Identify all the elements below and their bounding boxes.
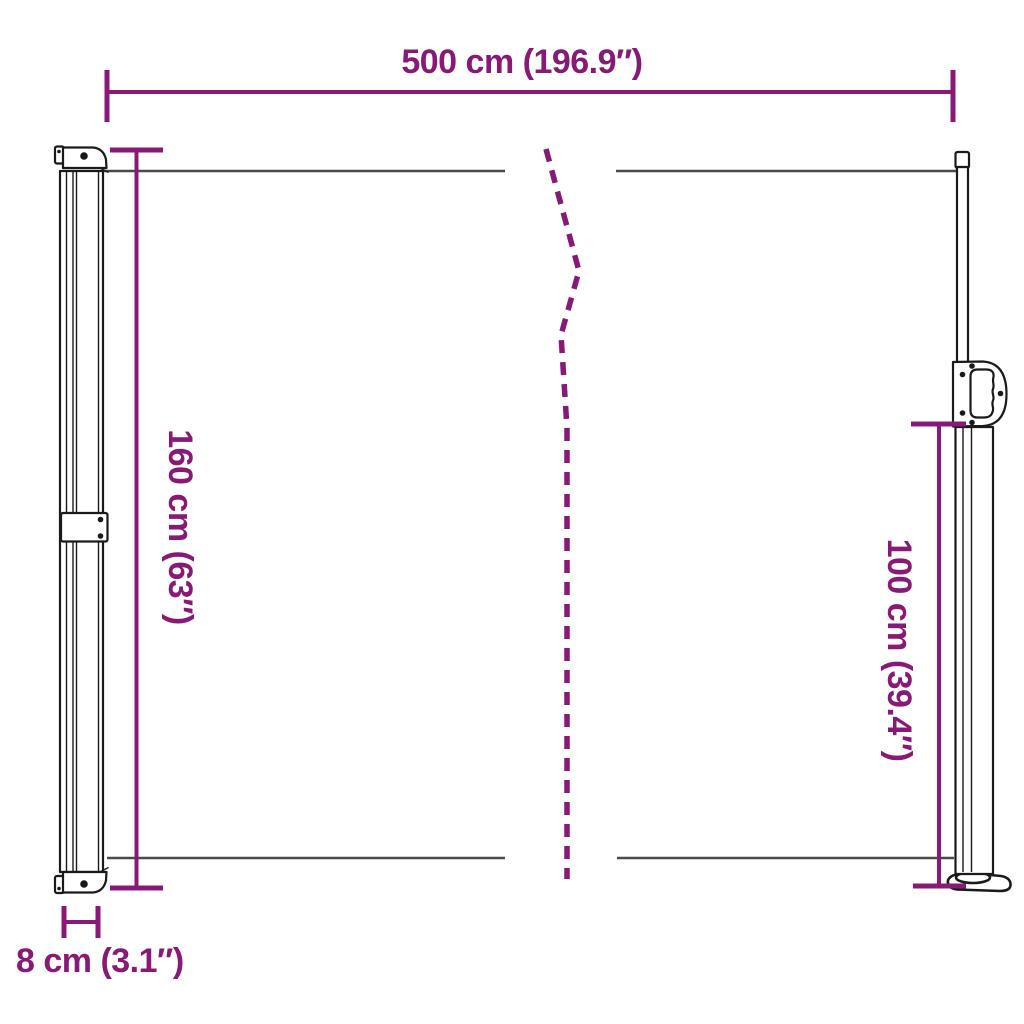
height-left-dimension-label: 160 cm (63″) <box>160 397 200 657</box>
pole-handle <box>953 362 1007 427</box>
cassette-post <box>55 147 109 894</box>
cassette-top-cap <box>55 147 109 173</box>
height-left-dimension <box>110 150 163 888</box>
depth-dimension-label: 8 cm (3.1″) <box>16 941 184 981</box>
pole-upper <box>957 167 968 363</box>
awning-fabric-lines <box>104 171 957 858</box>
pole-lower <box>956 427 994 874</box>
depth-dimension <box>64 906 98 938</box>
diagram-canvas: 500 cm (196.9″) 160 cm (63″) 100 cm (39.… <box>0 0 1024 1024</box>
break-line <box>546 149 579 879</box>
width-dimension-label: 500 cm (196.9″) <box>322 42 722 82</box>
handle-grip-cutout <box>971 370 994 418</box>
pole-top-cap <box>956 152 970 168</box>
cassette-bottom-cap <box>55 868 109 894</box>
pull-pole <box>948 152 1011 891</box>
height-right-dimension-label: 100 cm (39.4″) <box>879 510 919 790</box>
cassette-clamp <box>61 513 108 542</box>
awning-line-drawing <box>0 0 1024 1024</box>
